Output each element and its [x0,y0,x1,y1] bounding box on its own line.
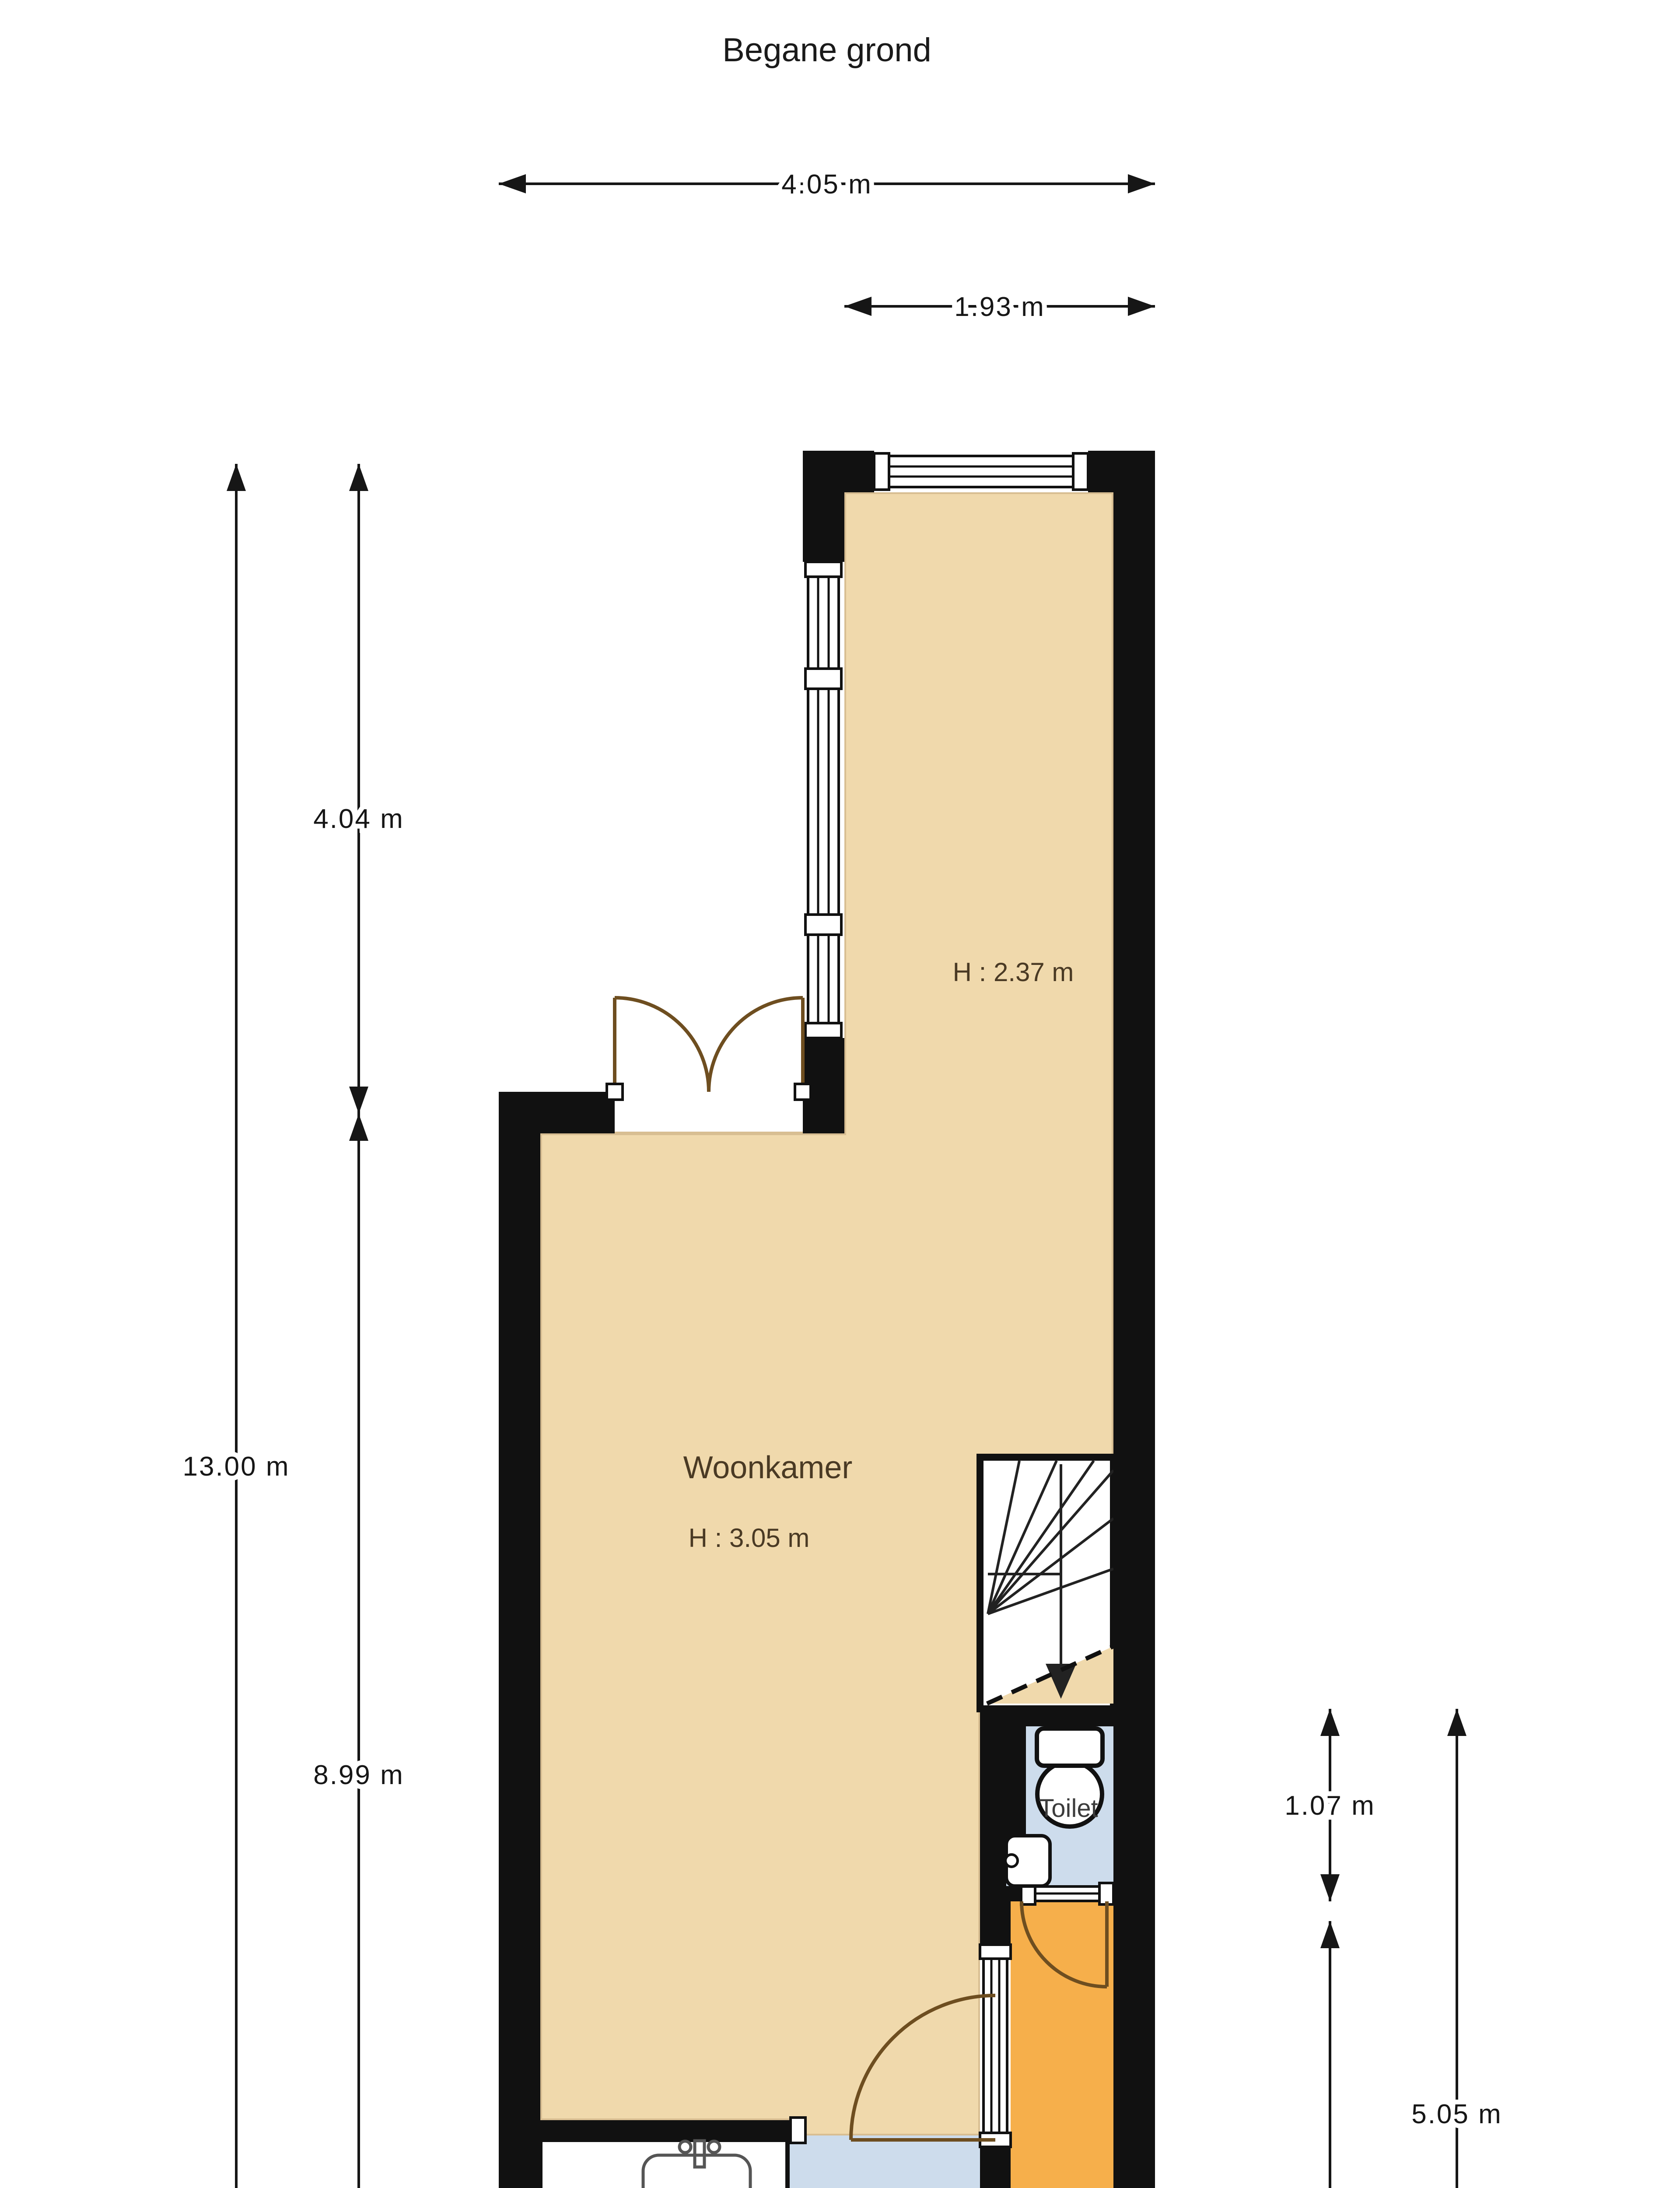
kitchen-counter [540,2140,787,2188]
window-upper-left [803,562,844,1038]
dim-left-upper: 4.04 m [313,804,404,834]
woonkamer-label: Woonkamer [683,1450,853,1485]
dim-left-total: 13.00 m [182,1452,290,1482]
dim-right-toilet: 1.07 m [1284,1791,1375,1821]
stairs-icon [980,1457,1113,1709]
upper-zone-height-label: H : 2.37 m [953,957,1074,987]
toilet-label: Toilet [1039,1794,1098,1823]
floorplan-drawing: Begane grond [0,0,1680,2188]
page-title: Begane grond [722,32,931,69]
dim-right-total: 5.05 m [1411,2099,1502,2129]
floorplan-page: Begane grond [0,0,1680,2188]
french-doors [607,998,811,1100]
dim-left-lower: 8.99 m [313,1760,404,1790]
wall-end-cap [791,2118,805,2143]
dim-top-width: 4.05 m [781,169,872,200]
window-top [874,451,1088,492]
entree-floor [1011,1901,1113,2188]
woonkamer-height-label: H : 3.05 m [689,1523,810,1553]
dim-top-upper-width: 1.93 m [954,292,1045,322]
sink-icon [1005,1836,1050,1886]
